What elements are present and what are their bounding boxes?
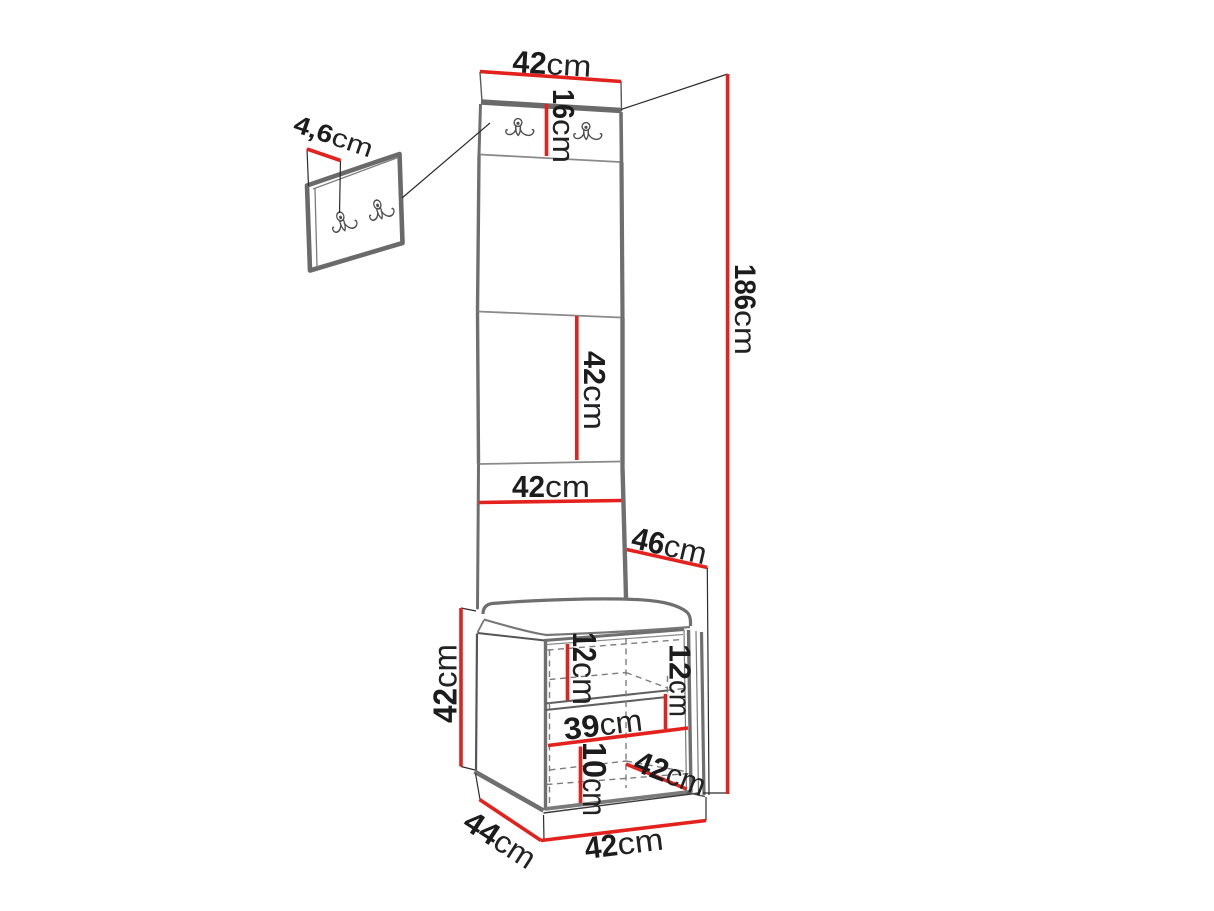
svg-text:10cm: 10cm bbox=[576, 742, 613, 816]
svg-text:12cm: 12cm bbox=[663, 644, 698, 717]
svg-text:12cm: 12cm bbox=[566, 632, 603, 705]
svg-text:42cm: 42cm bbox=[427, 644, 464, 723]
svg-text:42cm: 42cm bbox=[512, 469, 590, 504]
svg-text:42cm: 42cm bbox=[577, 351, 612, 430]
svg-text:16cm: 16cm bbox=[546, 89, 581, 163]
svg-text:186cm: 186cm bbox=[728, 264, 761, 355]
svg-text:42cm: 42cm bbox=[512, 44, 593, 84]
